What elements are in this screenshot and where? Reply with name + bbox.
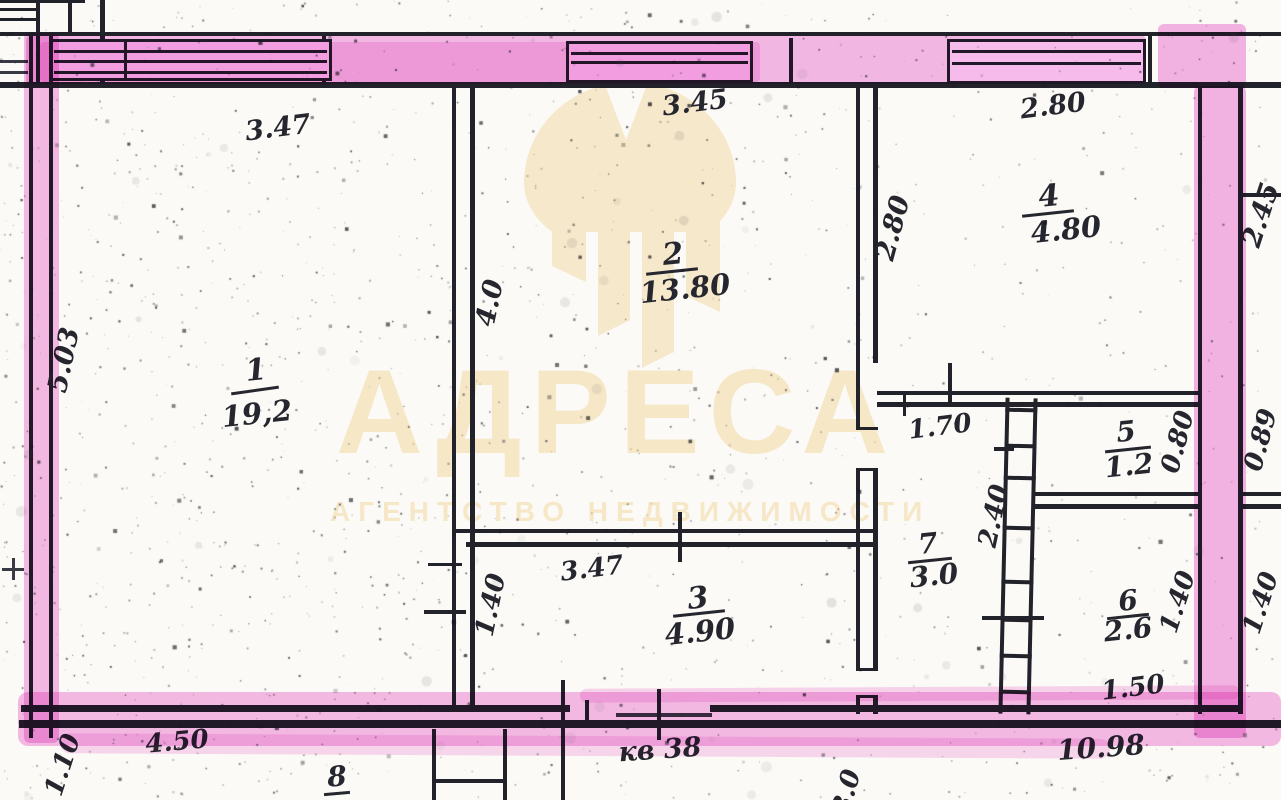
wall-line	[455, 529, 878, 533]
wall-line	[1032, 492, 1200, 496]
wall-line	[856, 470, 860, 670]
dimension-2-80-top: 2.80	[1019, 89, 1088, 124]
room-7-number: 7	[917, 529, 939, 559]
room-2-number: 2	[661, 239, 685, 271]
dimension-1-70: 1.70	[907, 410, 973, 444]
dimension-4-50: 4.50	[144, 726, 209, 757]
dimension-3-47-top: 3.47	[244, 111, 313, 146]
dimension-10-98: 10.98	[1056, 731, 1145, 765]
wall-line	[1032, 504, 1200, 509]
entrance-step-line	[432, 779, 507, 783]
dimension-0-80: 0.80	[1157, 408, 1199, 476]
dimension-partial-bottom: 3.0	[829, 767, 866, 800]
wall-line	[873, 470, 878, 670]
dimension-tick	[678, 512, 682, 562]
wall-line	[19, 720, 1281, 728]
room-7-area: 3.0	[908, 560, 959, 593]
dimension-0-89: 0.89	[1240, 406, 1281, 474]
door-leaf	[616, 713, 712, 717]
dimension-tick	[982, 616, 1044, 620]
dimension-2-45: 2.45	[1238, 180, 1281, 251]
scan-artifact	[12, 558, 15, 580]
wall-line	[877, 402, 1200, 407]
room-1-number: 1	[244, 355, 268, 387]
wall-line	[0, 32, 1281, 36]
dimension-tick	[424, 610, 466, 614]
wall-line	[710, 705, 1243, 712]
watermark-brand: АДРЕСА	[336, 352, 897, 472]
dimension-1-40-outer: 1.40	[1239, 569, 1281, 637]
dimension-1-40-room3: 1.40	[472, 571, 511, 638]
wall-line	[1148, 33, 1152, 85]
wall-line	[1198, 86, 1202, 714]
wall-line	[1243, 504, 1281, 509]
wall-line	[452, 86, 456, 708]
highlighter-mark-bottom-stroke	[60, 733, 1110, 758]
wall-line	[0, 60, 28, 63]
dimension-1-40-inner: 1.40	[1156, 568, 1200, 636]
wall-line	[0, 18, 36, 21]
wall-line	[36, 0, 40, 84]
section-8-number: 8	[326, 762, 347, 791]
door-jamb	[856, 427, 878, 430]
dimension-tick	[657, 689, 661, 740]
wall-line	[0, 0, 85, 3]
logo-notch	[604, 82, 648, 140]
dimension-tick	[789, 38, 793, 84]
hatched-partition-wall	[998, 398, 1037, 715]
floorplan-scan: АДРЕСА АГЕНТСТВО НЕДВИЖИМОСТИ	[0, 0, 1281, 800]
agency-logo-watermark	[518, 82, 752, 368]
apartment-number-label: кв 38	[618, 734, 703, 767]
entrance-step-line	[561, 680, 565, 800]
wall-line	[0, 8, 38, 11]
wall-line	[466, 542, 878, 547]
room-1-area: 19,2	[220, 396, 293, 432]
door-jamb	[856, 695, 878, 698]
entrance-step-line	[503, 729, 507, 800]
room-3-area: 4.90	[663, 614, 736, 650]
room-4-area: 4.80	[1029, 212, 1102, 248]
room-5-area: 1.2	[1103, 450, 1154, 483]
window-symbol	[49, 39, 332, 81]
dimension-3-45: 3.45	[661, 86, 730, 121]
wall-line	[877, 391, 1200, 395]
dimension-tick	[124, 39, 127, 81]
logo-column	[598, 178, 630, 336]
wall-line	[68, 0, 72, 36]
wall-line	[1243, 492, 1281, 496]
room-5-number: 5	[1115, 417, 1137, 447]
dimension-tick	[948, 363, 952, 407]
dimension-1-10: 1.10	[41, 731, 85, 799]
dimension-tick	[428, 563, 462, 566]
dimension-4-0: 4.0	[472, 277, 508, 329]
door-jamb	[856, 468, 878, 471]
wall-line	[0, 71, 28, 74]
dimension-tick	[903, 392, 906, 416]
window-symbol	[566, 41, 753, 83]
room-6-area: 2.6	[1102, 614, 1153, 647]
room-4-number: 4	[1037, 181, 1061, 213]
wall-line	[856, 86, 860, 430]
dimension-tick	[994, 447, 1014, 451]
window-symbol	[947, 39, 1146, 84]
entrance-step-line	[432, 729, 436, 800]
watermark-tagline: АГЕНТСТВО НЕДВИЖИМОСТИ	[330, 498, 930, 526]
dimension-1-50: 1.50	[1100, 671, 1166, 705]
door-jamb	[856, 668, 878, 671]
logo-column	[552, 178, 586, 282]
wall-line	[29, 33, 33, 738]
wall-line	[21, 705, 570, 712]
dimension-3-47-room3: 3.47	[559, 552, 625, 586]
dimension-tick	[585, 700, 589, 725]
